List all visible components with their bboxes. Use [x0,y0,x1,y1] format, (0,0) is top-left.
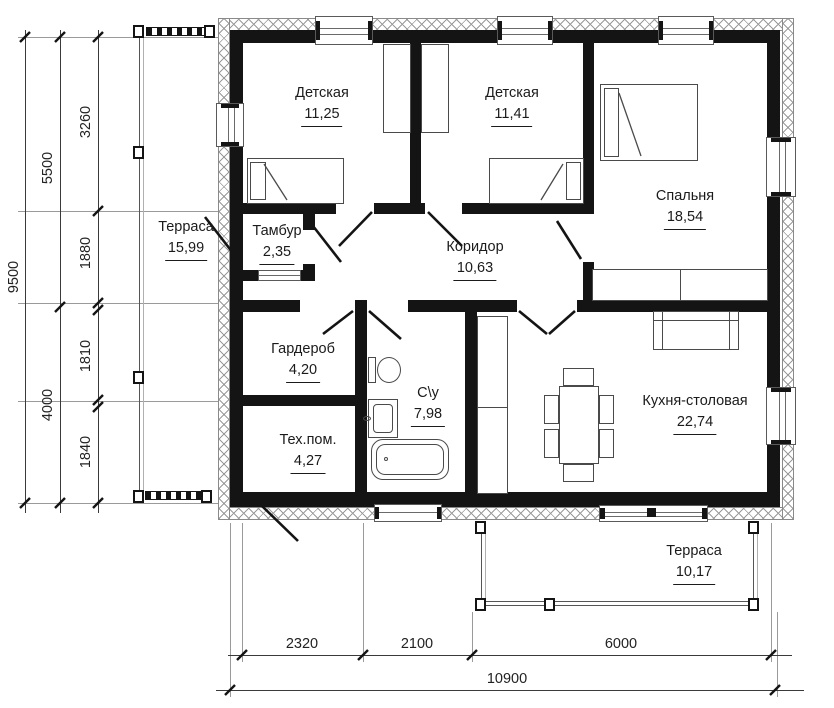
dim-label-5500: 5500 [40,152,56,184]
dim-label-10900: 10900 [487,671,527,687]
dim-label-1880: 1880 [78,237,94,269]
room-label-nursery-1: Детская 11,25 [295,83,349,127]
dim-label-6000: 6000 [605,636,637,652]
dim-label-3260: 3260 [78,106,94,138]
dim-label-4000: 4000 [40,389,56,421]
room-label-bedroom: Спальня 18,54 [656,186,714,230]
dim-label-9500: 9500 [6,261,22,293]
room-label-corridor: Коридор 10,63 [446,237,503,281]
dim-label-1810: 1810 [78,340,94,372]
door-swing-and-tick-lines [0,0,834,708]
room-label-nursery-2: Детская 11,41 [485,83,539,127]
room-label-terrace-left: Терраса 15,99 [158,217,214,261]
dim-label-2320: 2320 [286,636,318,652]
dim-label-2100: 2100 [401,636,433,652]
floor-plan: Детская 11,25 Детская 11,41 Спальня 18,5… [0,0,834,708]
room-label-tech-room: Тех.пом. 4,27 [280,430,337,474]
room-label-terrace-bottom: Терраса 10,17 [666,541,722,585]
room-label-bathroom: С\у 7,98 [411,383,445,427]
dim-label-1840: 1840 [78,436,94,468]
dimension-ticks [20,32,780,695]
room-label-vestibule: Тамбур 2,35 [252,221,301,265]
room-label-wardrobe-room: Гардероб 4,20 [271,339,335,383]
room-label-kitchen-living: Кухня-столовая 22,74 [642,391,747,435]
